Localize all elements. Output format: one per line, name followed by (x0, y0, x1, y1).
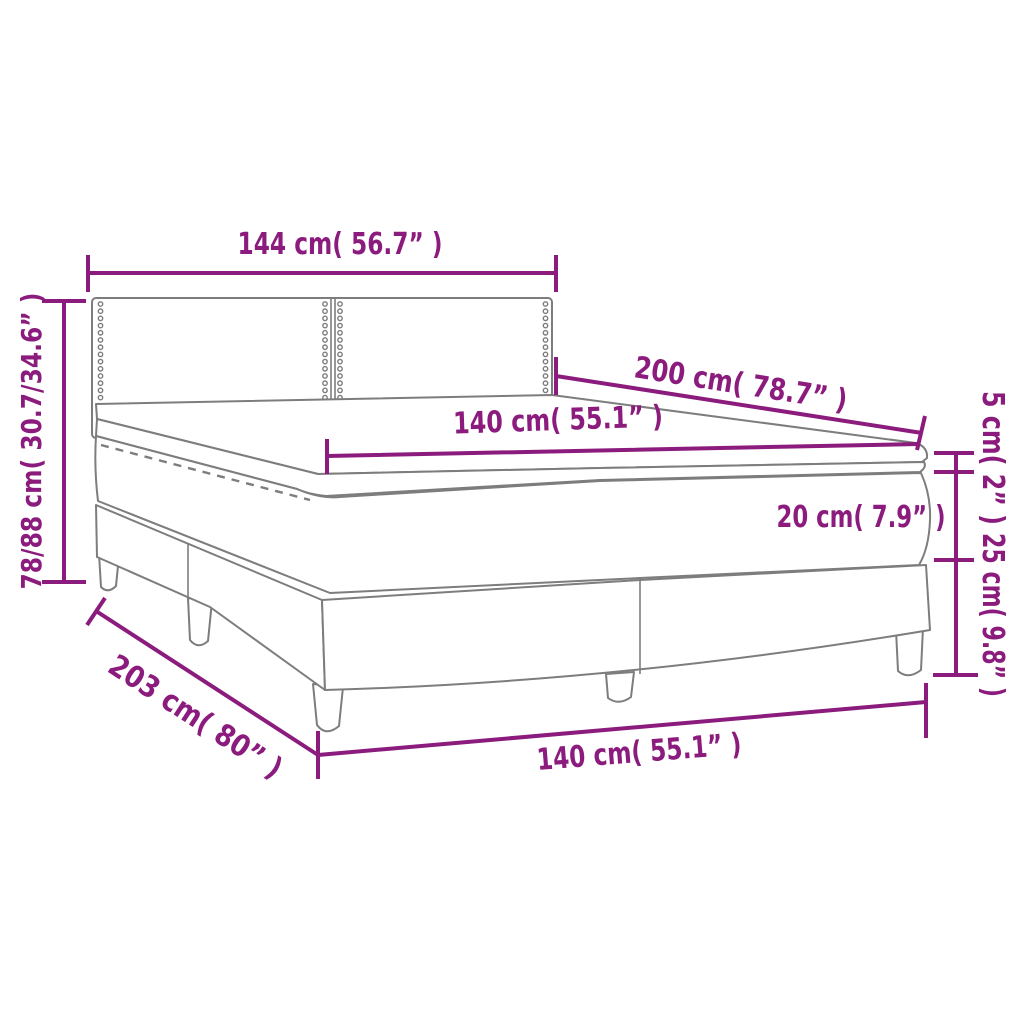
bed-leg (606, 672, 634, 702)
label-base-height: 25 cm( 9.8” ) (975, 533, 1010, 697)
dim-line-heights-bracket (933, 453, 978, 675)
label-headboard-width: 144 cm( 56.7” ) (238, 227, 443, 262)
diagram-canvas: 144 cm( 56.7” ) 200 cm( 78.7” ) 140 cm( … (0, 0, 1024, 1024)
label-mattress-width-top: 140 cm( 55.1” ) (453, 399, 664, 441)
label-bed-length: 200 cm( 78.7” ) (632, 350, 850, 418)
label-topper-height: 5 cm( 2” ) (975, 391, 1010, 525)
bed-dimension-diagram: 144 cm( 56.7” ) 200 cm( 78.7” ) 140 cm( … (0, 0, 1024, 1024)
label-mattress-height: 20 cm( 7.9” ) (777, 500, 946, 535)
dim-line-frame-height (42, 301, 86, 582)
label-frame-height: 78/88 cm( 30.7/34.6” ) (15, 293, 48, 590)
bed-leg (313, 684, 343, 731)
